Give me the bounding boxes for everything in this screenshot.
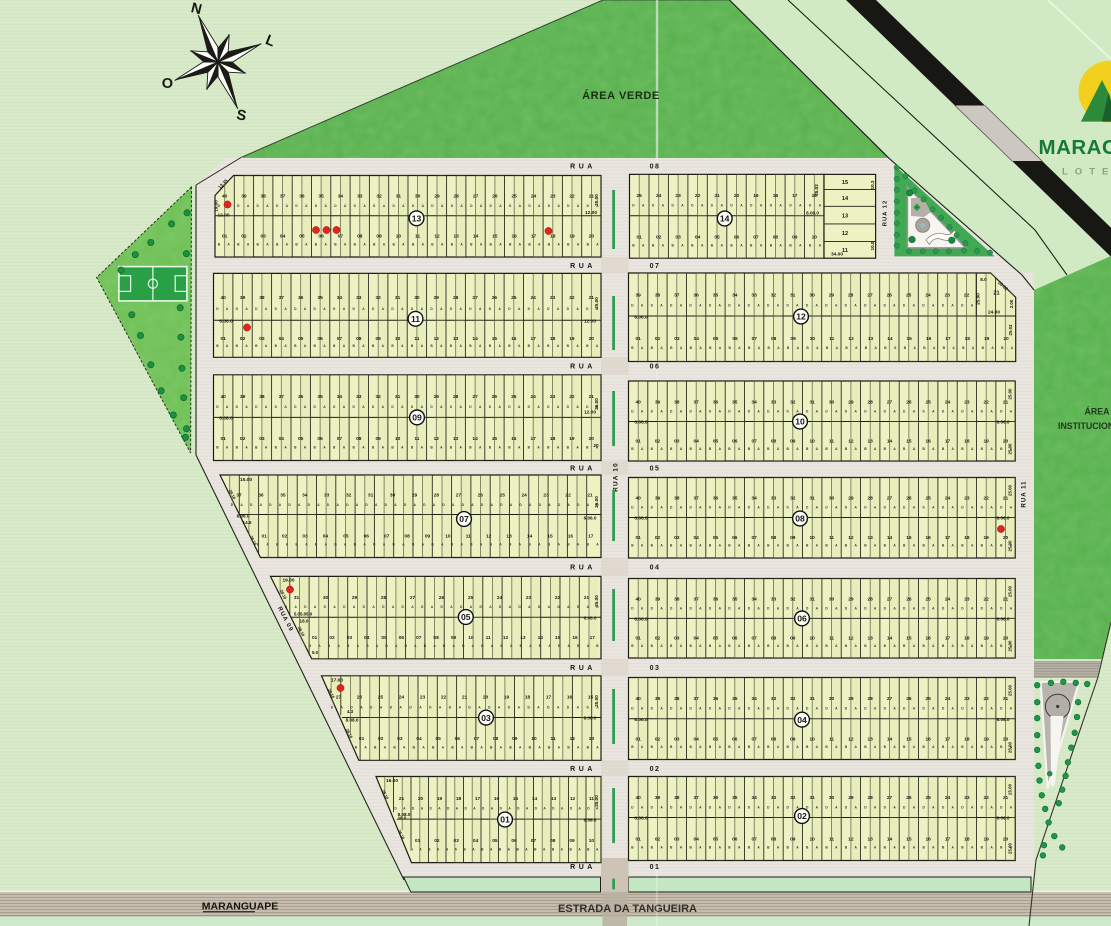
svg-text:6.06.0: 6.06.0 (997, 420, 1010, 425)
svg-text:25.00: 25.00 (1008, 443, 1013, 455)
svg-text:01: 01 (500, 815, 510, 825)
svg-text:MARACAN: MARACAN (1039, 136, 1111, 159)
svg-text:LOTEA: LOTEA (1062, 167, 1111, 178)
svg-text:01: 01 (650, 864, 661, 871)
svg-text:12.00: 12.00 (584, 410, 596, 416)
svg-text:25.00: 25.00 (594, 595, 599, 607)
svg-text:05: 05 (461, 612, 471, 622)
svg-text:6.06.0: 6.06.0 (584, 818, 597, 823)
svg-text:MARANGUAPE: MARANGUAPE (202, 901, 278, 913)
svg-text:20: 20 (593, 443, 599, 449)
svg-text:RUA: RUA (570, 163, 596, 170)
svg-text:18.0: 18.0 (398, 815, 407, 820)
svg-text:12.00: 12.00 (585, 210, 597, 216)
svg-text:25.00: 25.00 (594, 496, 599, 508)
svg-text:25.00: 25.00 (1008, 540, 1013, 552)
svg-text:02: 02 (650, 766, 661, 773)
svg-text:6.06.0: 6.06.0 (634, 717, 648, 723)
svg-text:11: 11 (411, 314, 420, 324)
svg-text:06: 06 (650, 364, 661, 371)
svg-text:04: 04 (650, 565, 661, 572)
svg-text:6.06.0: 6.06.0 (584, 616, 597, 621)
svg-text:10.0: 10.0 (870, 241, 875, 250)
svg-text:25.00: 25.00 (1008, 842, 1013, 854)
svg-text:34.00: 34.00 (831, 251, 843, 257)
svg-text:13: 13 (412, 214, 422, 224)
svg-text:02: 02 (797, 811, 807, 821)
svg-text:RUA 11: RUA 11 (1021, 480, 1028, 507)
svg-text:6.06.0: 6.06.0 (997, 516, 1010, 521)
svg-text:07: 07 (650, 263, 661, 270)
svg-text:6.06.0: 6.06.0 (634, 420, 648, 426)
svg-text:25.00: 25.00 (594, 695, 599, 707)
svg-text:RUA: RUA (570, 565, 596, 572)
svg-text:25.00: 25.00 (594, 795, 599, 807)
svg-text:08: 08 (795, 514, 805, 524)
svg-text:06: 06 (797, 614, 807, 624)
svg-text:03: 03 (650, 665, 661, 672)
svg-text:25.00: 25.00 (976, 293, 981, 305)
svg-text:O: O (162, 76, 173, 92)
svg-text:25.03: 25.03 (1008, 324, 1013, 336)
svg-text:6.06.0: 6.06.0 (634, 616, 648, 622)
svg-text:25.00: 25.00 (594, 297, 599, 309)
svg-text:09: 09 (412, 413, 422, 423)
svg-text:15.00: 15.00 (240, 477, 252, 483)
svg-text:24.00: 24.00 (988, 310, 1000, 316)
svg-text:8.08.0: 8.08.0 (806, 211, 819, 216)
svg-text:6.06.0: 6.06.0 (997, 816, 1010, 821)
svg-text:RUA: RUA (570, 465, 596, 472)
svg-text:5.05.05.0: 5.05.05.0 (294, 612, 313, 617)
svg-text:6.06.0: 6.06.0 (997, 616, 1010, 621)
svg-text:04: 04 (797, 715, 807, 725)
svg-text:14.5: 14.5 (243, 520, 252, 525)
svg-text:14: 14 (842, 196, 849, 202)
svg-text:6.06.0: 6.06.0 (219, 319, 233, 325)
svg-text:18.0: 18.0 (300, 619, 309, 624)
svg-text:ÁREA VERDE: ÁREA VERDE (582, 89, 660, 102)
svg-text:RUA: RUA (570, 364, 596, 371)
svg-text:17.00: 17.00 (331, 678, 343, 684)
svg-text:25.00: 25.00 (594, 398, 599, 410)
svg-text:ÁREA: ÁREA (1085, 407, 1111, 417)
svg-text:03: 03 (481, 713, 491, 723)
svg-text:RUA: RUA (570, 263, 596, 270)
svg-text:5.0: 5.0 (312, 650, 319, 655)
svg-text:19.00: 19.00 (282, 578, 294, 584)
svg-text:08: 08 (650, 163, 661, 170)
svg-text:6.06.0: 6.06.0 (584, 516, 597, 521)
svg-text:12: 12 (842, 231, 848, 237)
svg-text:12.00: 12.00 (584, 319, 596, 325)
svg-text:25.00: 25.00 (1008, 640, 1013, 652)
svg-text:2.00: 2.00 (1009, 299, 1014, 308)
svg-text:25.00: 25.00 (1008, 783, 1013, 795)
svg-text:8.08.0: 8.08.0 (346, 718, 359, 723)
svg-text:RUA 12: RUA 12 (883, 200, 889, 226)
svg-text:19.00: 19.00 (214, 200, 219, 212)
svg-text:12.00: 12.00 (217, 213, 229, 219)
svg-text:10: 10 (795, 417, 805, 427)
svg-text:RUA: RUA (570, 665, 596, 672)
svg-text:25.00: 25.00 (1008, 585, 1013, 597)
svg-text:25.00: 25.00 (1008, 388, 1013, 400)
svg-text:25.00: 25.00 (1008, 484, 1013, 496)
svg-text:INSTITUCIONAL: INSTITUCIONAL (1058, 421, 1111, 431)
svg-text:6.06.0: 6.06.0 (237, 514, 250, 519)
svg-text:RUA: RUA (570, 864, 596, 871)
svg-text:ESTRADA DA TANGUEIRA: ESTRADA DA TANGUEIRA (558, 903, 697, 915)
svg-text:14: 14 (720, 214, 730, 224)
svg-text:RUA: RUA (570, 766, 596, 773)
svg-text:8.0: 8.0 (980, 277, 987, 282)
svg-text:05: 05 (650, 465, 661, 472)
svg-text:6.06.0: 6.06.0 (634, 315, 648, 321)
svg-text:6.06.0: 6.06.0 (584, 716, 597, 721)
svg-text:6.06.0: 6.06.0 (997, 717, 1010, 722)
svg-text:8.08.0: 8.08.0 (219, 416, 233, 422)
svg-text:6.06.0: 6.06.0 (634, 516, 648, 522)
svg-text:25.00: 25.00 (594, 194, 599, 206)
svg-text:12: 12 (796, 312, 806, 322)
svg-text:RUA 10: RUA 10 (613, 462, 620, 492)
svg-text:16.00: 16.00 (386, 778, 398, 784)
svg-text:21: 21 (993, 291, 999, 297)
svg-text:6.06.0: 6.06.0 (634, 816, 648, 822)
svg-text:25.02: 25.02 (814, 184, 819, 196)
svg-text:13: 13 (842, 213, 848, 219)
svg-text:15: 15 (842, 180, 848, 186)
svg-text:25.00: 25.00 (1008, 741, 1013, 753)
svg-text:07: 07 (459, 514, 469, 524)
svg-text:25.00: 25.00 (1008, 684, 1013, 696)
svg-text:4.3: 4.3 (347, 709, 354, 714)
svg-text:10.3: 10.3 (870, 180, 875, 189)
